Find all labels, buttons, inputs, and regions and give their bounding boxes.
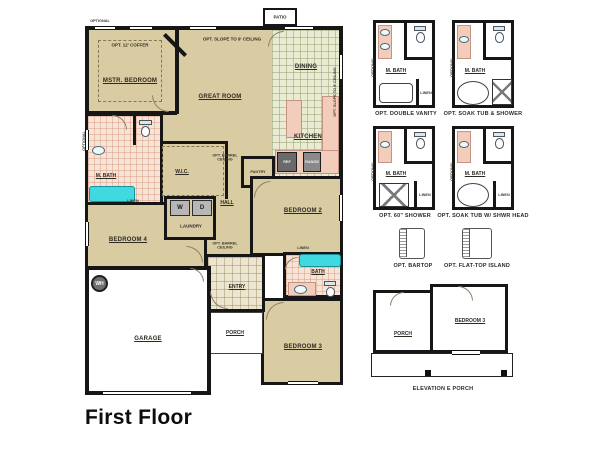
opt1-room-label: M. BATH (386, 68, 406, 74)
wic-label: W.I.C. (175, 169, 189, 175)
sink (380, 29, 390, 36)
opt1-optional-note: OPTIONAL (371, 57, 375, 77)
toilet-tank (414, 26, 426, 31)
bedroom2-label: BEDROOM 2 (284, 208, 322, 214)
bath2-label: BATH (311, 269, 325, 275)
bedroom4-label: BEDROOM 4 (109, 237, 147, 243)
opt-flat-top-caption: OPT. FLAT-TOP ISLAND (444, 263, 510, 269)
opt-barrel-label-2: OPT. BARREL CEILING (210, 242, 240, 251)
tub (379, 83, 413, 103)
mstr-bedroom-label: MSTR. BEDROOM (103, 78, 157, 84)
shower-60 (379, 183, 409, 207)
bath2-sink (294, 285, 307, 294)
window (288, 381, 318, 385)
toilet (416, 138, 425, 149)
hall-label: HALL (220, 200, 233, 206)
wall-segment (225, 141, 228, 199)
elevation-bedroom3-label: BEDROOM 3 (455, 318, 485, 324)
window (452, 350, 480, 355)
opt4-linen-label: LINEN (498, 193, 509, 197)
bartop-hatch (400, 229, 407, 257)
porch-slab (371, 353, 513, 377)
bath2-tub (299, 254, 341, 267)
opt-slope-label-right: OPT. SLOPE TO 9' CEILING (333, 67, 337, 116)
refrigerator: REF (277, 152, 297, 172)
wall-segment (404, 129, 407, 161)
optional-note-left: OPTIONAL (82, 131, 86, 151)
porch-post (425, 370, 431, 376)
toilet (495, 138, 504, 149)
soak-tub (457, 81, 489, 105)
master-toilet (141, 126, 150, 137)
opt-coffer-outline (98, 40, 162, 102)
opt-slope-label-top: OPT. SLOPE TO 9' CEILING (203, 37, 261, 42)
sink (459, 141, 469, 148)
sink (459, 36, 469, 43)
kitchen-island (286, 100, 302, 138)
opt-flat-top-island-diagram (462, 228, 492, 259)
opt-barrel-label-1: OPT. BARREL CEILING (210, 154, 240, 163)
pantry-label: PANTRY (250, 170, 265, 174)
entry-label: ENTRY (229, 284, 246, 290)
patio-label: PATIO (273, 15, 286, 20)
sink (380, 141, 390, 148)
window (285, 26, 313, 30)
bath2-toilet-tank (324, 281, 336, 286)
master-sink (92, 146, 105, 155)
opt3-caption: OPT. 60" SHOWER (379, 213, 431, 219)
wall-segment (404, 161, 432, 164)
water-heater: WH (91, 275, 108, 292)
wall-segment (483, 57, 511, 60)
opt2-optional-note: OPTIONAL (450, 57, 454, 77)
window (85, 222, 89, 246)
washer-box: W (170, 200, 190, 216)
wall-segment (175, 26, 179, 114)
opt-bartop-diagram (399, 228, 425, 259)
sink (380, 43, 390, 50)
opt-soak-tub-shower-diagram: M. BATH OPTIONAL (452, 20, 514, 108)
toilet (495, 32, 504, 43)
toilet (416, 32, 425, 43)
wall-segment (158, 141, 228, 144)
opt-double-vanity-diagram: M. BATH LINEN OPTIONAL (373, 20, 435, 108)
wall-segment (133, 113, 136, 145)
opt2-room-label: M. BATH (465, 68, 485, 74)
opt4-optional-note: OPTIONAL (450, 161, 454, 181)
toilet-tank (493, 26, 505, 31)
dining-label: DINING (295, 64, 317, 70)
window (95, 26, 115, 30)
toilet-tank (493, 132, 505, 137)
opt4-caption: OPT. SOAK TUB W/ SHWR HEAD (437, 213, 528, 219)
great-room-label: GREAT ROOM (199, 94, 242, 100)
garage-label: GARAGE (134, 336, 162, 342)
island-hatch (463, 229, 470, 257)
wall-segment (483, 161, 511, 164)
optional-note-top: OPTIONAL (90, 19, 110, 23)
wall-segment (416, 79, 419, 105)
wall-segment (404, 23, 407, 57)
opt-bartop-caption: OPT. BARTOP (393, 263, 432, 269)
garage-door (103, 391, 191, 395)
dryer-box: D (192, 200, 212, 216)
window (339, 55, 343, 79)
elevation-porch-label: PORCH (394, 331, 412, 337)
toilet-tank (414, 132, 426, 137)
window (190, 26, 216, 30)
porch-post (501, 370, 507, 376)
wall-segment (414, 181, 417, 207)
wall-segment (483, 129, 486, 161)
opt3-linen-label: LINEN (419, 193, 430, 197)
floor-plan-sheet: PATIO REF RANGE W D WH M (0, 0, 600, 450)
window (339, 195, 343, 221)
shower (492, 79, 512, 105)
wall-segment (493, 181, 496, 207)
page-title: First Floor (85, 406, 192, 430)
wall-segment (483, 23, 486, 57)
elevation-caption: ELEVATION E PORCH (413, 386, 474, 392)
window (130, 26, 152, 30)
kitchen-label: KITCHEN (294, 134, 322, 140)
porch-label: PORCH (226, 330, 244, 336)
range: RANGE (303, 152, 321, 172)
opt2-caption: OPT. SOAK TUB & SHOWER (444, 111, 523, 117)
opt-coffer-label: OPT. 12' COFFER (111, 43, 148, 48)
opt1-linen-label: LINEN (420, 91, 431, 95)
opt3-room-label: M. BATH (386, 171, 406, 177)
wall-segment (404, 57, 432, 60)
soak-tub (457, 183, 489, 207)
master-toilet-tank (139, 120, 152, 125)
laundry-label: LAUNDRY (180, 224, 202, 229)
bath2-toilet (326, 287, 335, 297)
bedroom3-label: BEDROOM 3 (284, 344, 322, 350)
opt3-optional-note: OPTIONAL (371, 161, 375, 181)
opt-60-shower-diagram: M. BATH LINEN OPTIONAL (373, 126, 435, 210)
m-bath-label: M. BATH (96, 173, 116, 179)
opt4-room-label: M. BATH (465, 171, 485, 177)
opt-soak-tub-shwr-head-diagram: M. BATH LINEN OPTIONAL (452, 126, 514, 210)
linen-label-1: LINEN (127, 199, 138, 203)
linen-label-2: LINEN (297, 246, 308, 250)
opt1-caption: OPT. DOUBLE VANITY (375, 111, 437, 117)
